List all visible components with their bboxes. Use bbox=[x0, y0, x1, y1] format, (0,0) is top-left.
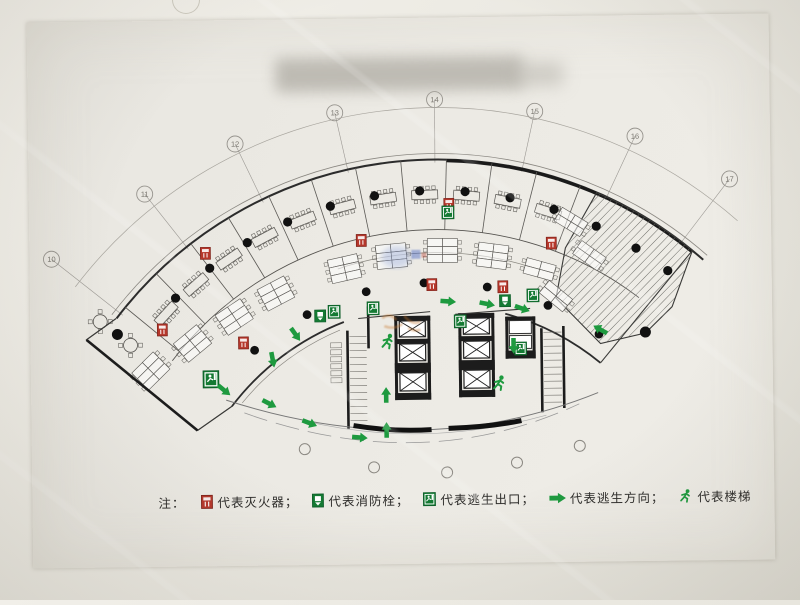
escape-direction-arrow bbox=[479, 298, 496, 311]
photo-scene: 1011121314151617 注： 代表灭火器； bbox=[0, 0, 800, 600]
fire-extinguisher-symbol bbox=[238, 337, 248, 349]
fire-extinguisher-icon bbox=[200, 494, 213, 509]
escape-direction-arrow bbox=[260, 396, 278, 412]
escape-exit-symbol bbox=[527, 289, 539, 302]
svg-text:13: 13 bbox=[330, 108, 338, 117]
meeting-room bbox=[214, 245, 245, 274]
escape-exit-symbol bbox=[367, 302, 379, 315]
blurred-title bbox=[275, 55, 523, 92]
desk-cluster bbox=[323, 253, 365, 285]
escape-direction-arrow bbox=[440, 296, 456, 307]
legend-item-stairs: 代表楼梯 bbox=[677, 486, 751, 506]
legend-label-stairs: 代表楼梯 bbox=[697, 486, 751, 506]
fire-hydrant-symbol bbox=[315, 310, 326, 322]
svg-text:15: 15 bbox=[530, 107, 538, 116]
fire-extinguisher-symbol bbox=[427, 279, 437, 291]
legend-note: 注： bbox=[158, 493, 185, 512]
stairs-man-symbol bbox=[494, 375, 504, 390]
legend-label-exit: 代表逃生出口； bbox=[440, 488, 535, 508]
blurred-title-small bbox=[517, 62, 563, 87]
escape-exit-symbol bbox=[454, 315, 466, 328]
desk-cluster bbox=[519, 257, 560, 282]
escape-exit-symbol bbox=[203, 371, 219, 388]
desk-cluster bbox=[423, 238, 461, 262]
meeting-room bbox=[287, 207, 317, 233]
svg-text:11: 11 bbox=[141, 190, 149, 199]
svg-text:10: 10 bbox=[47, 255, 55, 264]
desk-cluster bbox=[212, 296, 257, 337]
escape-exit-symbol bbox=[328, 305, 340, 318]
fire-extinguisher-symbol bbox=[498, 281, 508, 293]
legend-label-hydrant: 代表消防栓； bbox=[328, 490, 409, 510]
desk-cluster bbox=[254, 274, 299, 313]
desk-cluster bbox=[129, 349, 173, 393]
paper-wrap: 1011121314151617 注： 代表灭火器； bbox=[0, 0, 800, 605]
desk-cluster bbox=[170, 322, 215, 365]
legend-item-extinguisher: 代表灭火器； bbox=[200, 491, 298, 511]
fire-extinguisher-symbol bbox=[546, 237, 556, 249]
svg-text:17: 17 bbox=[725, 175, 733, 184]
svg-text:12: 12 bbox=[231, 140, 239, 149]
meeting-room bbox=[411, 186, 438, 204]
meeting-room bbox=[181, 270, 212, 300]
legend-label-extinguisher: 代表灭火器； bbox=[217, 491, 298, 511]
legend-item-hydrant: 代表消防栓； bbox=[311, 490, 409, 510]
desk-cluster bbox=[472, 242, 513, 271]
legend-item-direction: 代表逃生方向； bbox=[548, 487, 665, 507]
fire-extinguisher-symbol bbox=[200, 247, 210, 259]
fire-hydrant-icon bbox=[311, 493, 324, 508]
escape-direction-icon bbox=[548, 491, 566, 503]
legend-item-exit: 代表逃生出口； bbox=[422, 488, 535, 508]
svg-text:14: 14 bbox=[430, 95, 438, 104]
svg-text:16: 16 bbox=[631, 132, 639, 141]
escape-direction-arrow bbox=[287, 325, 304, 343]
escape-exit-symbol bbox=[442, 206, 454, 219]
stairs-man-symbol bbox=[382, 334, 392, 349]
stairs-icon bbox=[677, 488, 693, 504]
escape-exit-icon bbox=[422, 492, 436, 507]
escape-direction-arrow bbox=[352, 432, 368, 443]
legend-label-direction: 代表逃生方向； bbox=[570, 487, 665, 507]
hatched-area bbox=[555, 191, 694, 344]
fire-extinguisher-symbol bbox=[356, 234, 366, 246]
fire-hydrant-symbol bbox=[499, 295, 510, 307]
fire-extinguisher-symbol bbox=[157, 324, 167, 336]
escape-direction-arrow bbox=[301, 416, 319, 431]
escape-direction-arrow bbox=[381, 387, 391, 403]
escape-direction-arrow bbox=[266, 351, 279, 368]
meeting-room bbox=[249, 224, 280, 251]
